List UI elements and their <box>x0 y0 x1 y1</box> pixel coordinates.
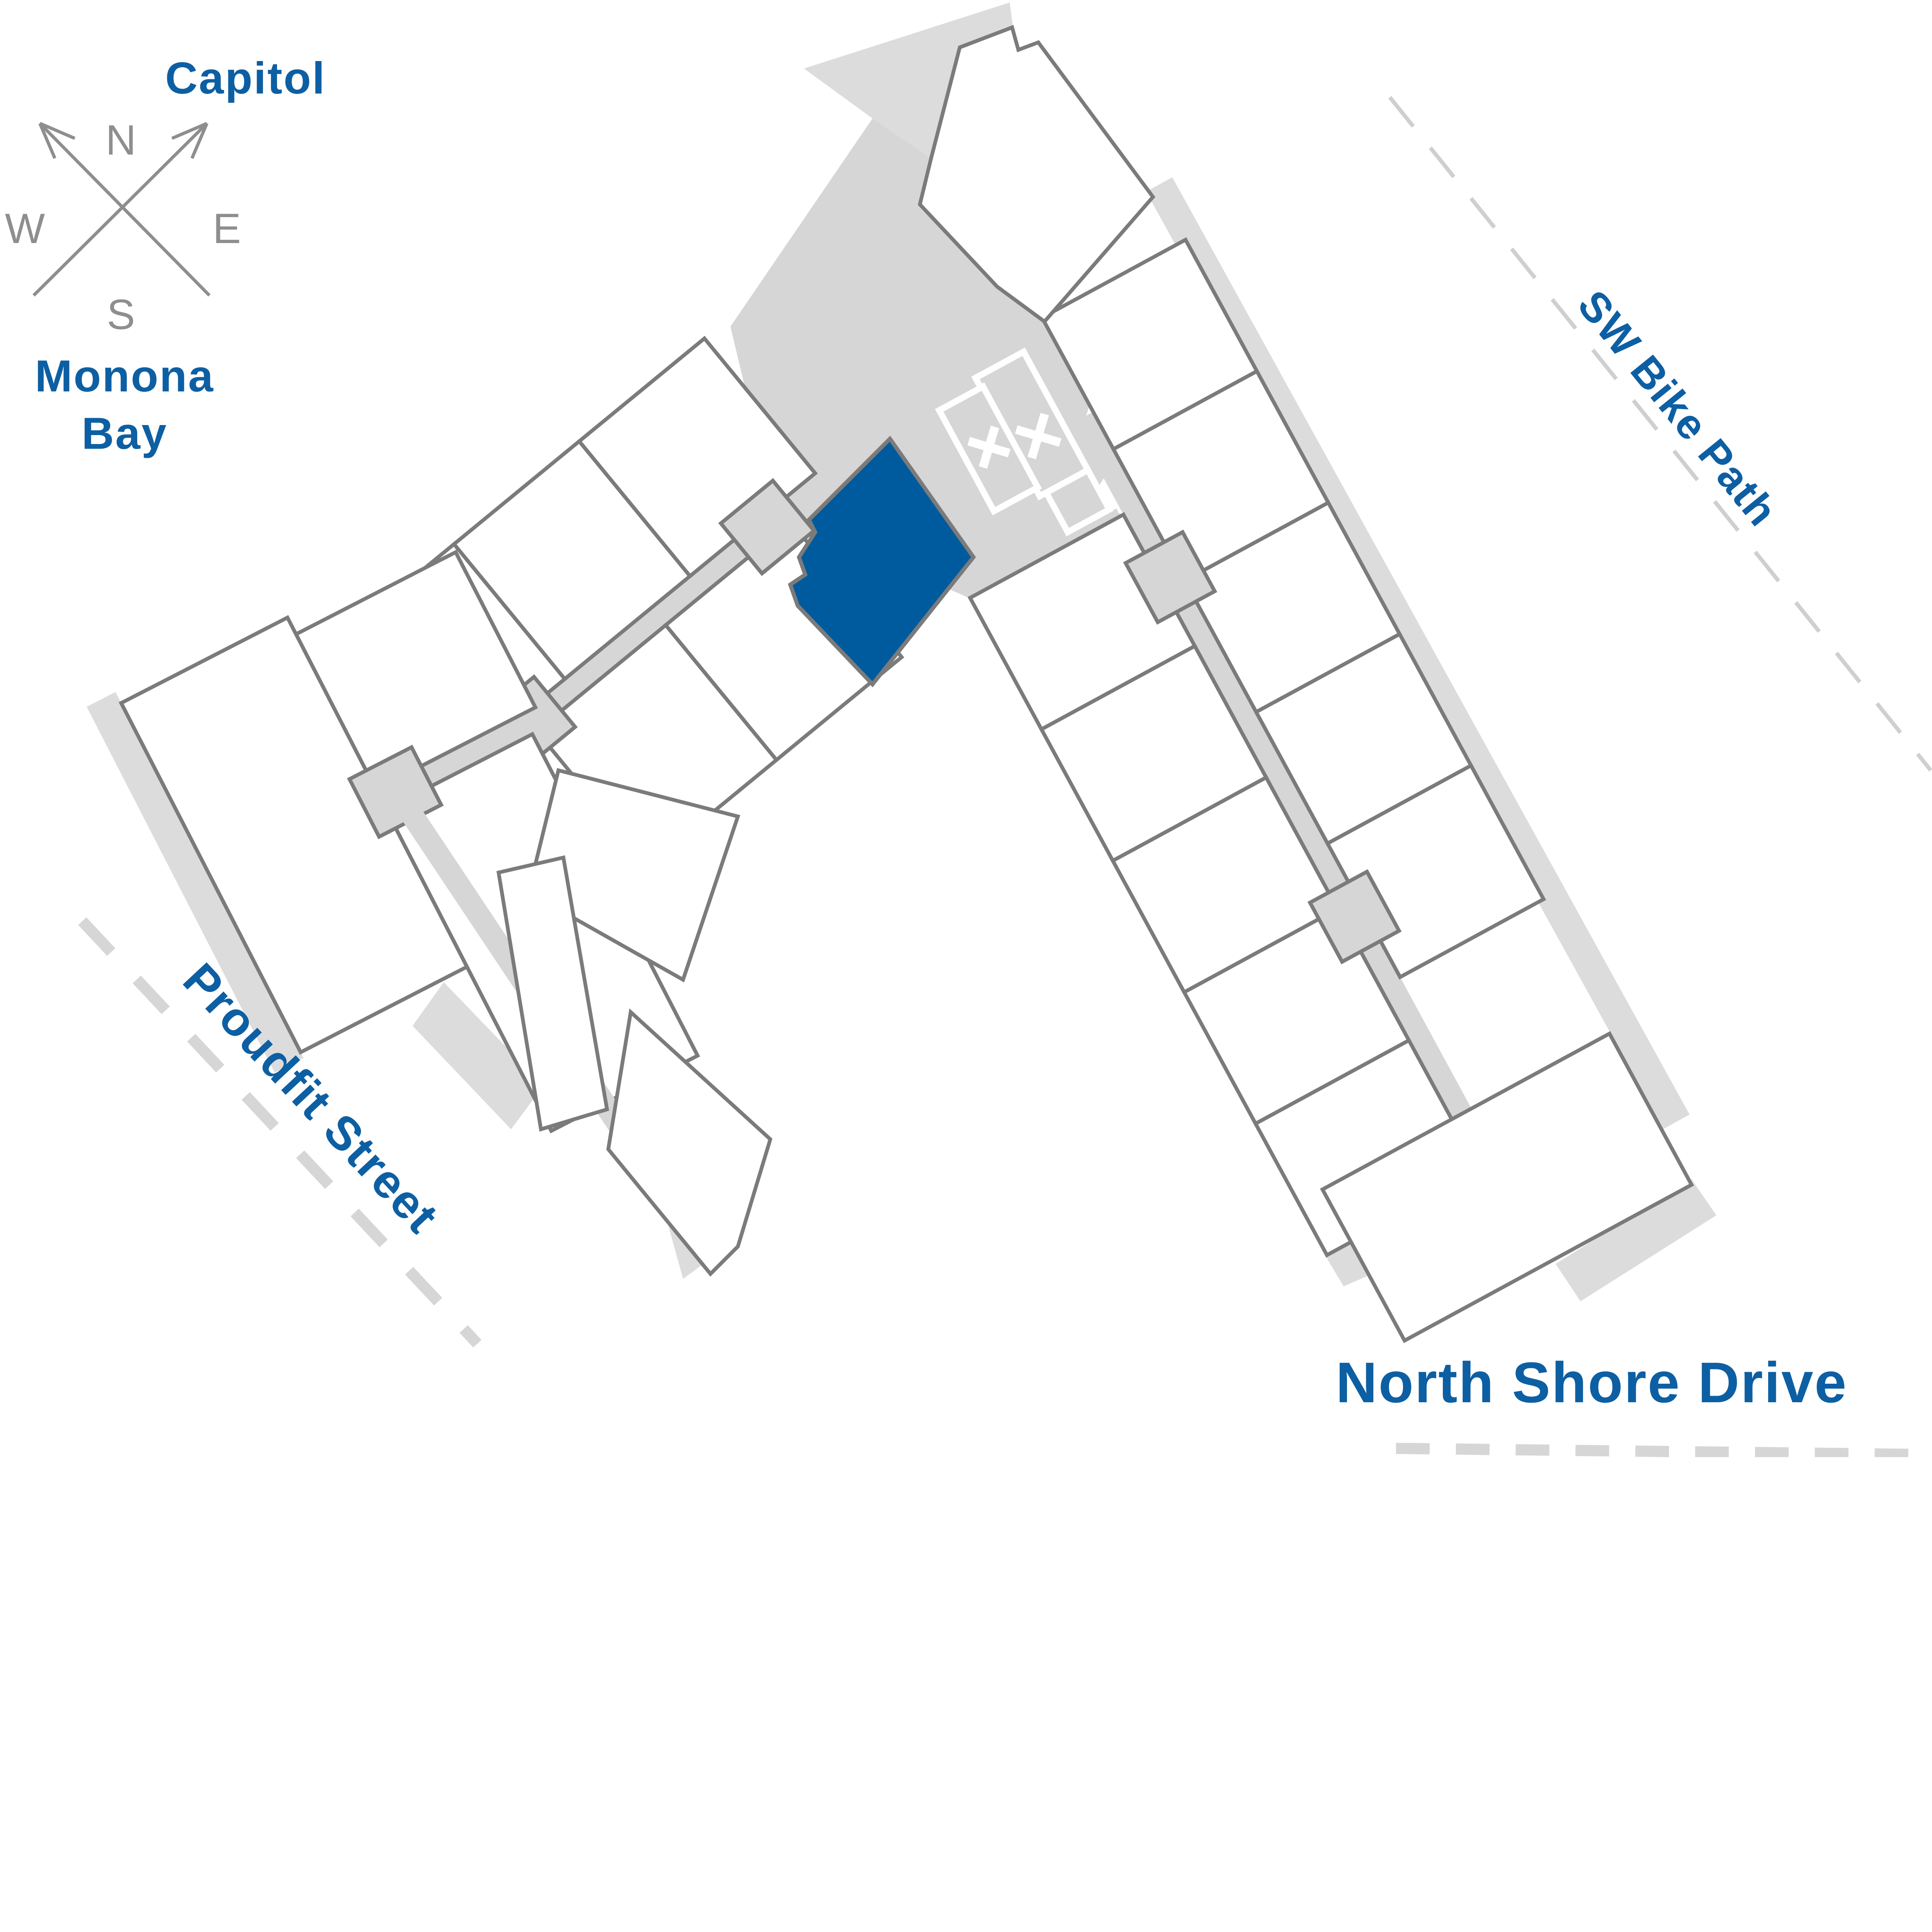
north-shore-drive-label: North Shore Drive <box>1336 1351 1848 1415</box>
sw-bike-path-label: SW Bike Path <box>1569 282 1787 535</box>
compass-south: S <box>107 291 135 338</box>
compass-north: N <box>105 117 136 164</box>
compass: N E S W <box>5 117 241 338</box>
compass-east: E <box>213 205 241 252</box>
sw-bike-path-line <box>1390 97 1931 770</box>
site-plan-map: N E S W Capitol Monona Bay SW Bike Path … <box>0 0 1932 1457</box>
monona-bay-label-line1: Monona <box>35 351 214 401</box>
north-shore-drive-line <box>1396 1448 1932 1454</box>
site-plan-page: N E S W Capitol Monona Bay SW Bike Path … <box>0 0 1932 1457</box>
compass-west: W <box>5 205 45 252</box>
capitol-label: Capitol <box>165 53 326 103</box>
monona-bay-label-line2: Bay <box>82 408 168 458</box>
